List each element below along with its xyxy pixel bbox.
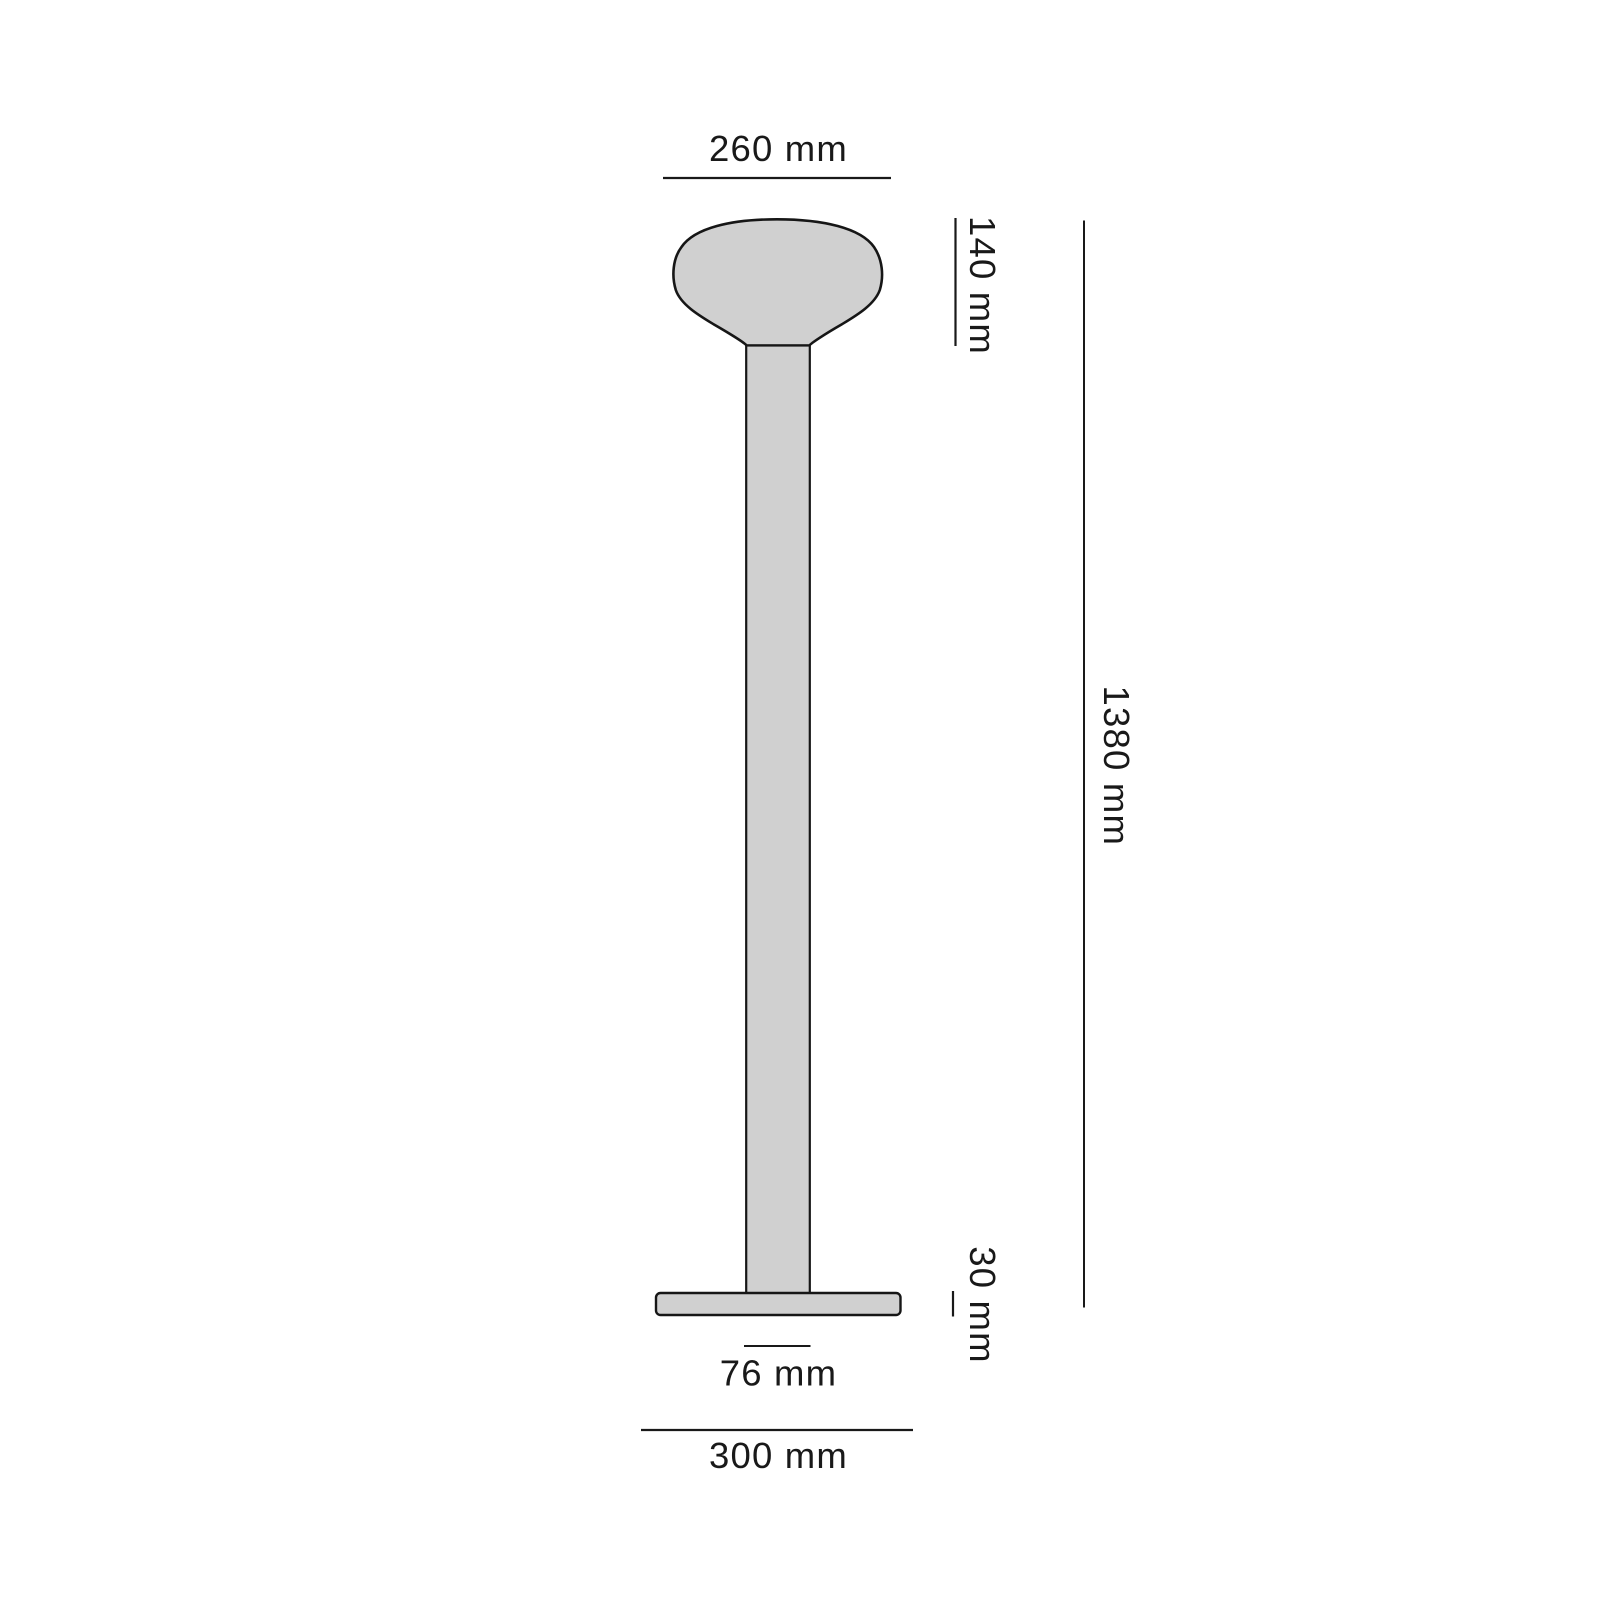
svg-text:300 mm: 300 mm bbox=[709, 1435, 848, 1476]
svg-text:140 mm: 140 mm bbox=[962, 216, 1003, 355]
svg-text:1380 mm: 1380 mm bbox=[1096, 686, 1137, 847]
svg-text:30 mm: 30 mm bbox=[962, 1246, 1003, 1364]
svg-text:76 mm: 76 mm bbox=[720, 1353, 838, 1394]
svg-text:260 mm: 260 mm bbox=[709, 128, 848, 169]
